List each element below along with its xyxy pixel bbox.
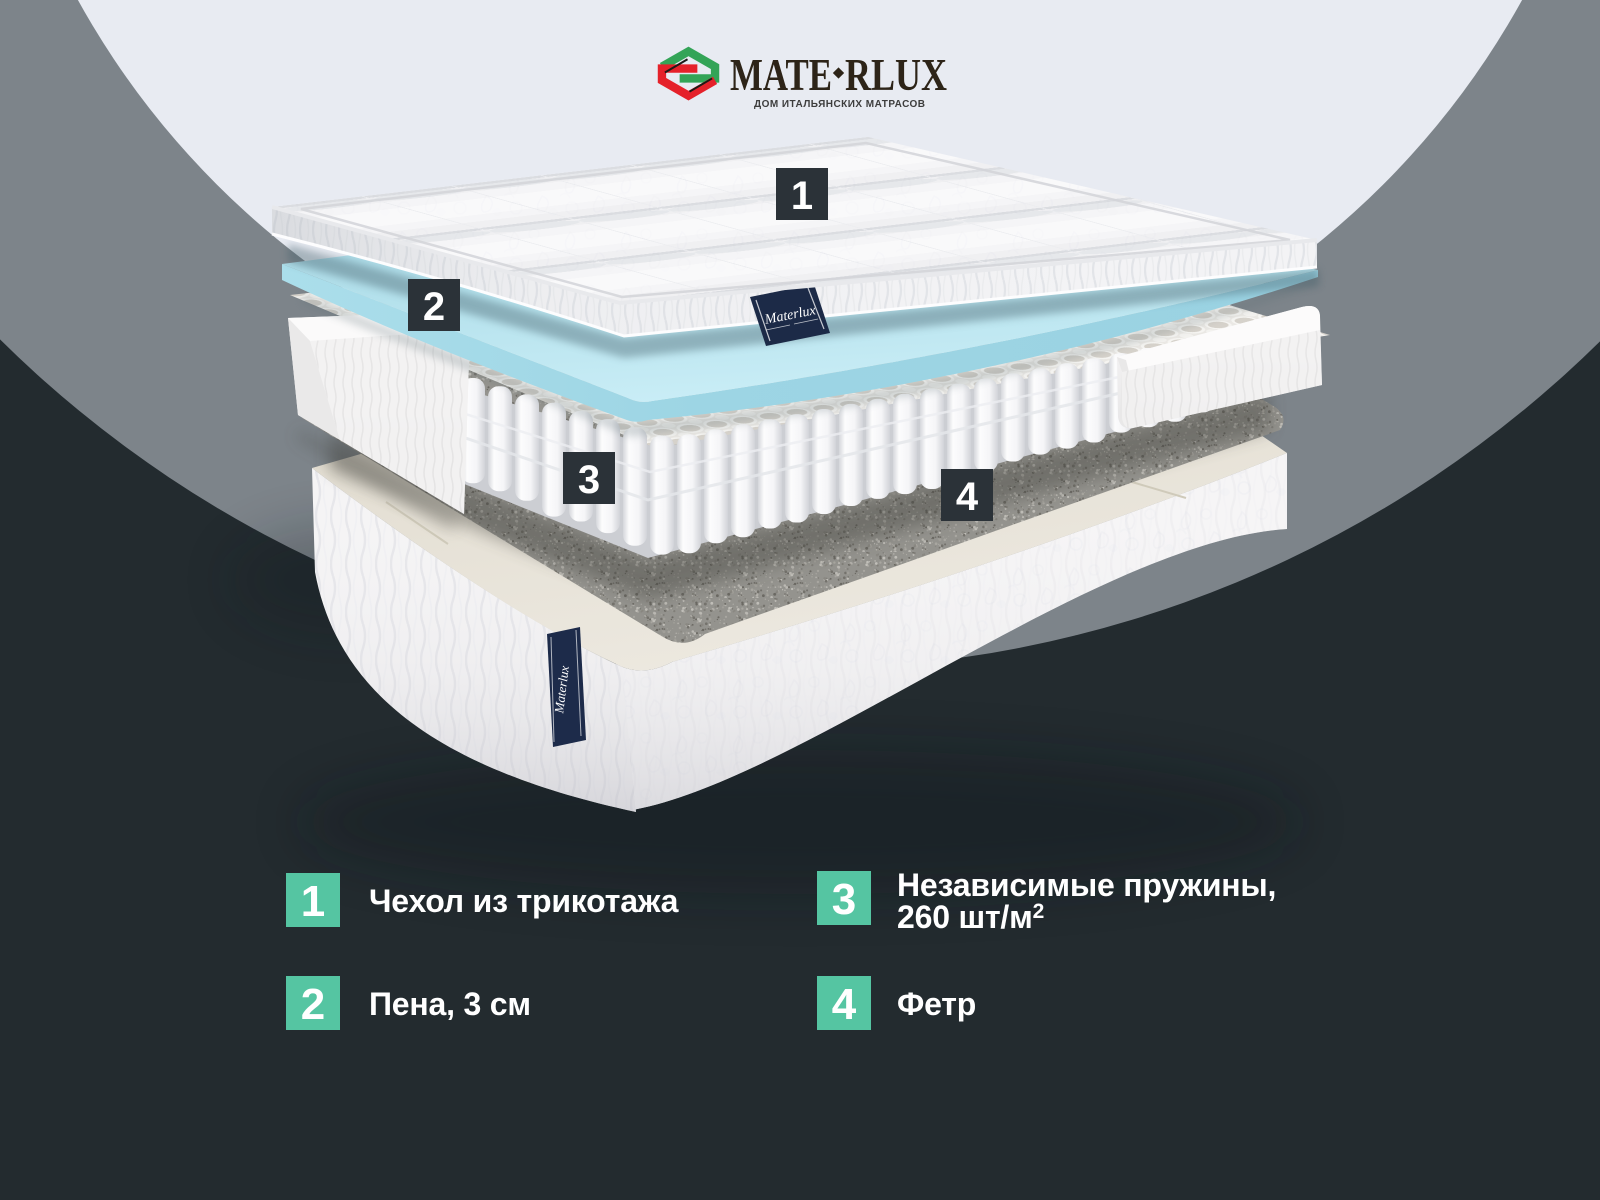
svg-text:4: 4 <box>956 475 979 519</box>
svg-text:1: 1 <box>791 174 813 218</box>
svg-text:3: 3 <box>832 875 856 924</box>
svg-text:4: 4 <box>832 980 857 1029</box>
svg-text:Чехол из трикотажа: Чехол из трикотажа <box>369 883 679 919</box>
svg-text:2: 2 <box>423 285 445 329</box>
svg-text:MATE: MATE <box>730 49 832 100</box>
svg-text:Независимые пружины,: Независимые пружины, <box>897 867 1276 903</box>
svg-text:Пена, 3 см: Пена, 3 см <box>369 986 531 1022</box>
svg-text:3: 3 <box>578 458 600 502</box>
svg-text:Фетр: Фетр <box>897 986 976 1022</box>
svg-text:1: 1 <box>301 877 325 926</box>
svg-text:RLUX: RLUX <box>845 49 947 100</box>
svg-text:260 шт/м2: 260 шт/м2 <box>897 899 1044 935</box>
svg-text:2: 2 <box>301 980 325 1029</box>
svg-text:ДОМ ИТАЛЬЯНСКИХ МАТРАСОВ: ДОМ ИТАЛЬЯНСКИХ МАТРАСОВ <box>754 99 926 110</box>
